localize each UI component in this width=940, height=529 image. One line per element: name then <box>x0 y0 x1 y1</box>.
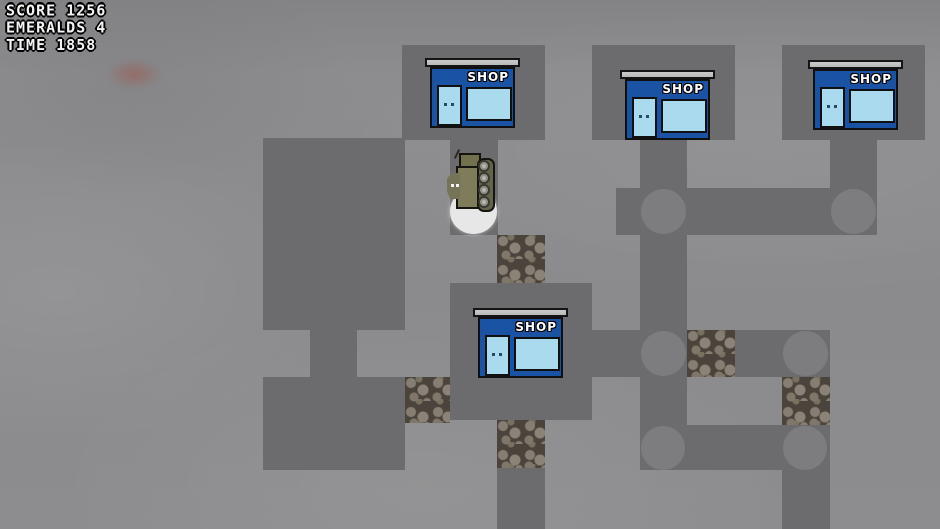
shop-door <box>820 87 845 128</box>
shop-awning <box>808 60 903 69</box>
door-handle-icon <box>499 353 502 356</box>
door-handle-icon <box>834 105 837 108</box>
tank-wheel-icon <box>478 160 490 172</box>
red-smudge <box>104 58 164 90</box>
plaza-block <box>263 377 405 470</box>
shop-sign: SHOP <box>850 72 892 86</box>
door-handle-icon <box>646 115 649 118</box>
tank-light <box>456 184 459 187</box>
shop-facade: SHOP <box>430 67 515 128</box>
shop-window <box>514 337 560 371</box>
shop-window <box>661 99 707 133</box>
door-handle-icon <box>444 103 447 106</box>
hud-emeralds: EMERALDS 4 <box>6 19 106 36</box>
cobblestone-tile <box>497 420 545 468</box>
shop-awning <box>425 58 520 67</box>
game-viewport: SHOP SHOP SHOP SHOP <box>0 0 940 529</box>
intersection-circle <box>783 331 828 376</box>
shop-building[interactable]: SHOP <box>473 308 568 380</box>
shop-door <box>485 335 510 376</box>
shop-building[interactable]: SHOP <box>808 60 903 132</box>
intersection-circle <box>831 189 876 234</box>
shop-sign: SHOP <box>515 320 557 334</box>
shop-window <box>466 87 512 121</box>
intersection-circle <box>783 426 827 470</box>
player-tank[interactable] <box>447 153 495 213</box>
tank-light <box>451 184 454 187</box>
hud-score: SCORE 1256 <box>6 2 106 19</box>
cobblestone-tile <box>782 377 830 425</box>
door-handle-icon <box>451 103 454 106</box>
shop-sign: SHOP <box>467 70 509 84</box>
shop-facade: SHOP <box>478 317 563 378</box>
shop-facade: SHOP <box>813 69 898 130</box>
shop-awning <box>620 70 715 79</box>
intersection-circle <box>641 426 685 470</box>
shop-building[interactable]: SHOP <box>620 70 715 142</box>
cobblestone-tile <box>687 330 735 377</box>
shop-awning <box>473 308 568 317</box>
shop-door <box>437 85 462 126</box>
cobblestone-tile <box>405 377 450 423</box>
door-handle-icon <box>827 105 830 108</box>
tank-wheel-icon <box>478 172 490 184</box>
intersection-circle <box>641 331 686 376</box>
door-handle-icon <box>639 115 642 118</box>
hud-time: TIME 1858 <box>6 37 106 54</box>
plaza-block <box>263 138 405 330</box>
shop-building[interactable]: SHOP <box>425 58 520 130</box>
shop-facade: SHOP <box>625 79 710 140</box>
tank-wheel-icon <box>478 184 490 196</box>
plaza-connector <box>310 330 357 377</box>
shop-sign: SHOP <box>662 82 704 96</box>
hud: SCORE 1256 EMERALDS 4 TIME 1858 <box>6 2 106 54</box>
cobblestone-tile <box>497 235 545 283</box>
door-handle-icon <box>492 353 495 356</box>
tank-wheel-icon <box>478 196 490 208</box>
intersection-circle <box>641 189 686 234</box>
shop-window <box>849 89 895 123</box>
shop-door <box>632 97 657 138</box>
